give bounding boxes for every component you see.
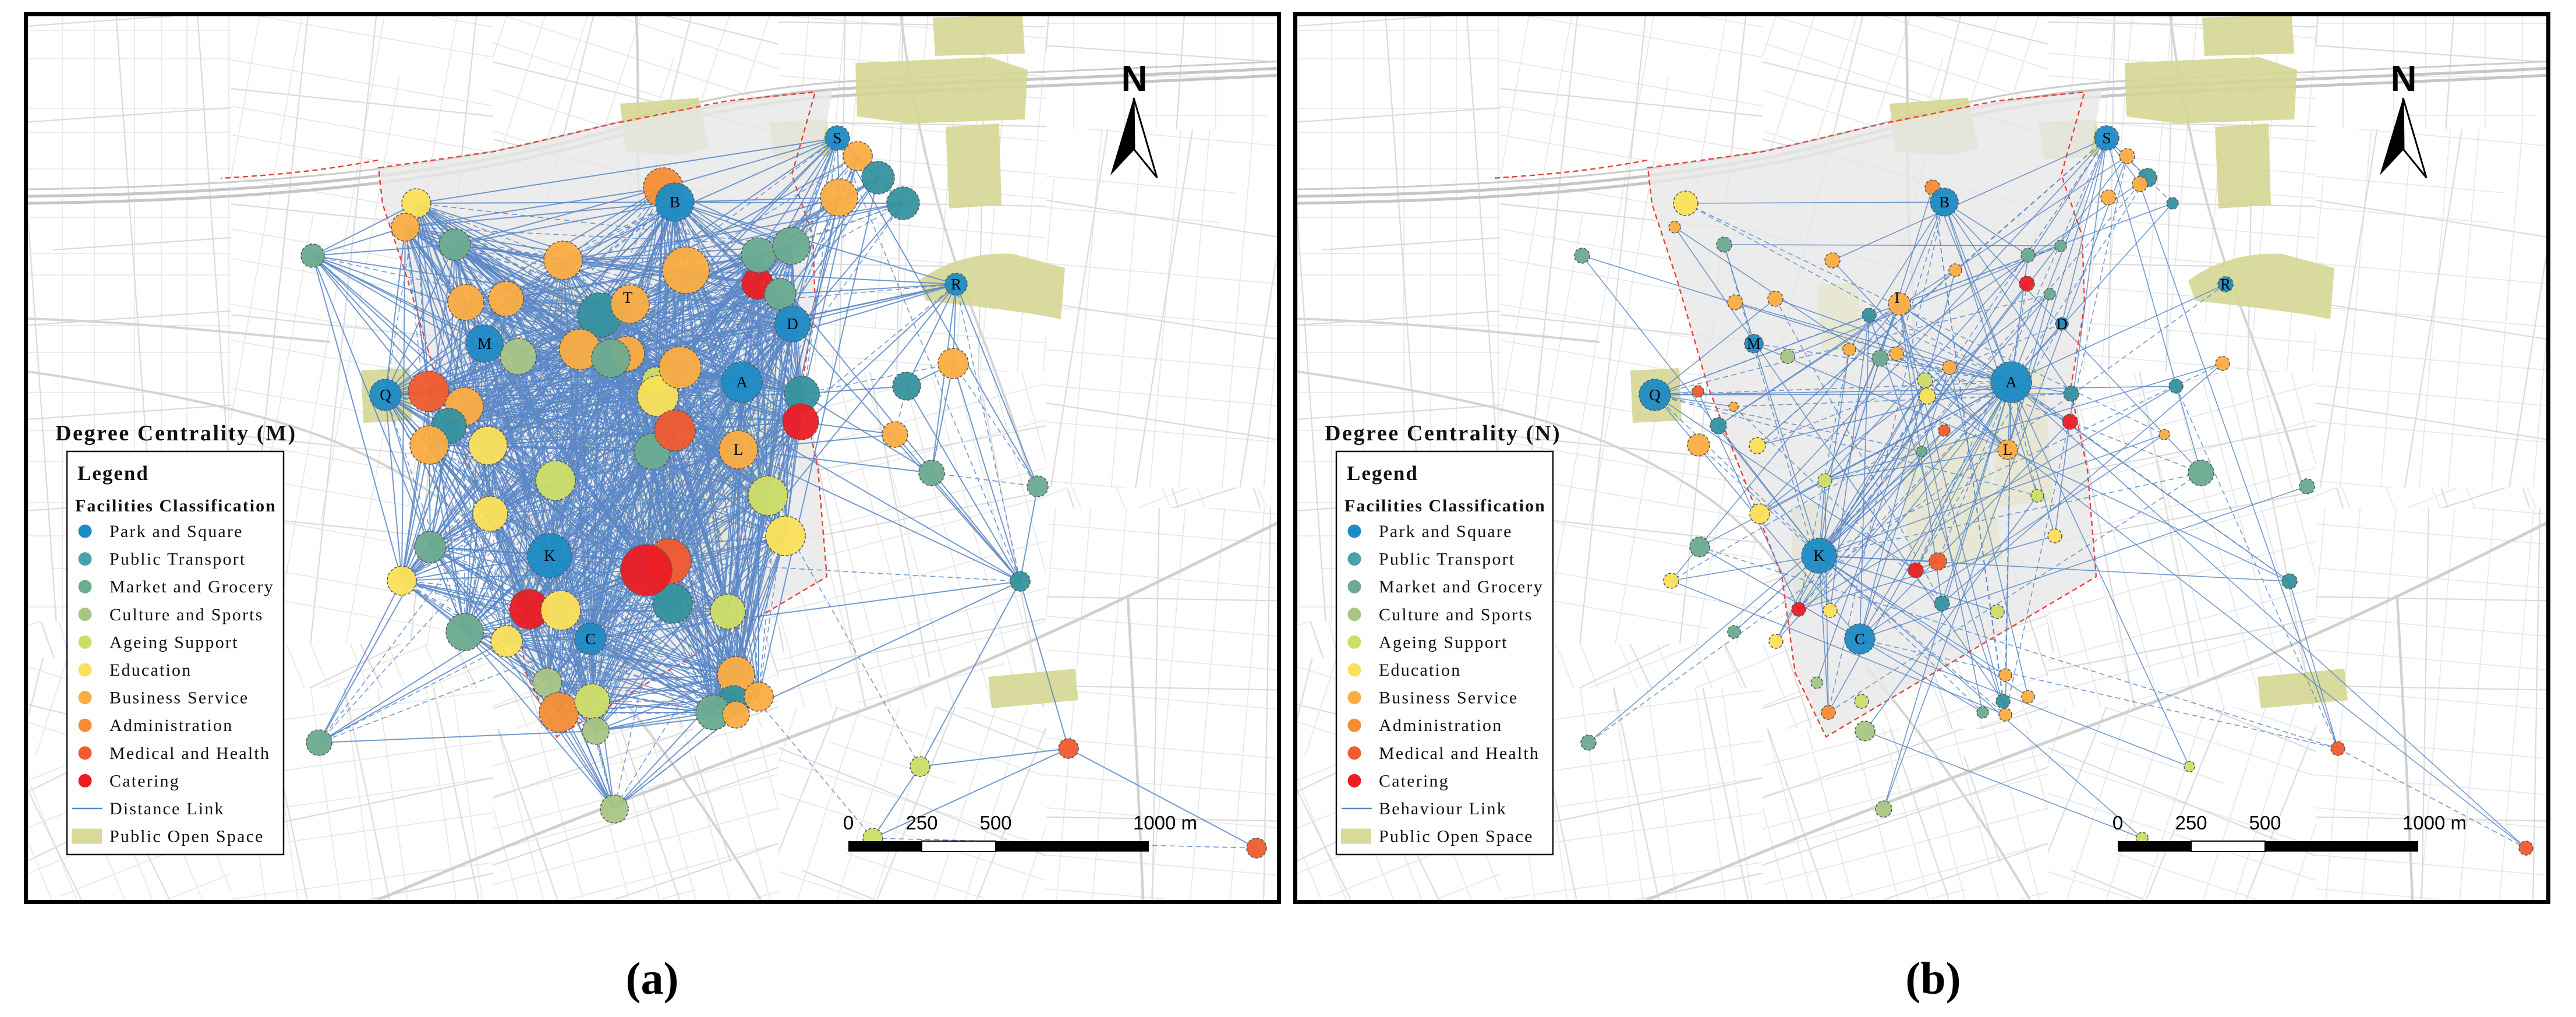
svg-text:A: A <box>2005 373 2017 391</box>
svg-text:C: C <box>585 630 596 648</box>
svg-text:Catering: Catering <box>1379 771 1449 790</box>
svg-text:250: 250 <box>2175 812 2207 834</box>
svg-text:S: S <box>2102 129 2111 147</box>
svg-text:S: S <box>833 129 841 147</box>
svg-text:Business Service: Business Service <box>109 688 249 708</box>
svg-text:500: 500 <box>2249 812 2281 834</box>
svg-text:Medical and Health: Medical and Health <box>109 744 270 763</box>
svg-text:Education: Education <box>1379 661 1461 680</box>
svg-text:A: A <box>736 373 748 391</box>
svg-text:Public Transport: Public Transport <box>1379 550 1515 569</box>
svg-text:Behaviour Link: Behaviour Link <box>1379 799 1507 818</box>
svg-text:0: 0 <box>2113 812 2123 834</box>
svg-text:K: K <box>544 547 555 564</box>
svg-text:Catering: Catering <box>109 771 180 790</box>
svg-text:Ageing Support: Ageing Support <box>1379 633 1508 652</box>
svg-text:M: M <box>1747 335 1761 352</box>
svg-text:N: N <box>1121 59 1148 99</box>
svg-text:Administration: Administration <box>1379 716 1502 735</box>
svg-text:L: L <box>734 441 744 458</box>
svg-text:Administration: Administration <box>109 716 233 735</box>
svg-text:Legend: Legend <box>77 462 149 485</box>
svg-text:Facilities Classification: Facilities Classification <box>75 496 277 515</box>
svg-text:Facilities Classification: Facilities Classification <box>1344 496 1546 515</box>
svg-text:Culture and Sports: Culture and Sports <box>109 605 264 624</box>
svg-text:(a): (a) <box>626 953 679 1004</box>
svg-text:Market and Grocery: Market and Grocery <box>109 577 274 596</box>
svg-text:C: C <box>1855 630 1865 648</box>
svg-text:Public Open Space: Public Open Space <box>109 827 264 846</box>
svg-text:Legend: Legend <box>1347 462 1418 485</box>
svg-text:(b): (b) <box>1905 953 1961 1004</box>
svg-text:T: T <box>623 289 633 306</box>
svg-text:I: I <box>1895 289 1900 306</box>
svg-text:Market and Grocery: Market and Grocery <box>1379 577 1544 596</box>
svg-text:Public Open Space: Public Open Space <box>1379 827 1534 846</box>
svg-text:Distance Link: Distance Link <box>109 799 225 818</box>
svg-text:Public Transport: Public Transport <box>109 550 246 569</box>
svg-text:1000 m: 1000 m <box>2402 812 2467 834</box>
svg-text:K: K <box>1813 547 1825 564</box>
svg-text:Degree Centrality (M): Degree Centrality (M) <box>55 421 297 446</box>
svg-text:B: B <box>670 193 680 211</box>
svg-text:N: N <box>2391 59 2417 99</box>
svg-text:R: R <box>951 276 961 293</box>
svg-text:Q: Q <box>1649 386 1661 404</box>
svg-text:0: 0 <box>843 812 854 834</box>
svg-text:Ageing Support: Ageing Support <box>109 633 239 652</box>
svg-text:L: L <box>2003 441 2013 458</box>
svg-text:Park and Square: Park and Square <box>109 522 243 541</box>
svg-text:Education: Education <box>109 661 192 680</box>
svg-text:B: B <box>1939 193 1949 211</box>
svg-text:Medical and Health: Medical and Health <box>1379 744 1540 763</box>
svg-text:R: R <box>2220 276 2231 293</box>
svg-text:Culture and Sports: Culture and Sports <box>1379 605 1533 624</box>
svg-text:Degree Centrality (N): Degree Centrality (N) <box>1325 421 1561 446</box>
svg-text:500: 500 <box>979 812 1011 834</box>
svg-text:D: D <box>2056 315 2068 333</box>
svg-text:Business Service: Business Service <box>1379 688 1518 708</box>
svg-text:Park and Square: Park and Square <box>1379 522 1513 541</box>
svg-text:M: M <box>477 335 491 352</box>
svg-text:D: D <box>787 315 798 333</box>
svg-text:1000 m: 1000 m <box>1133 812 1197 834</box>
svg-text:250: 250 <box>905 812 937 834</box>
svg-text:Q: Q <box>380 386 391 404</box>
